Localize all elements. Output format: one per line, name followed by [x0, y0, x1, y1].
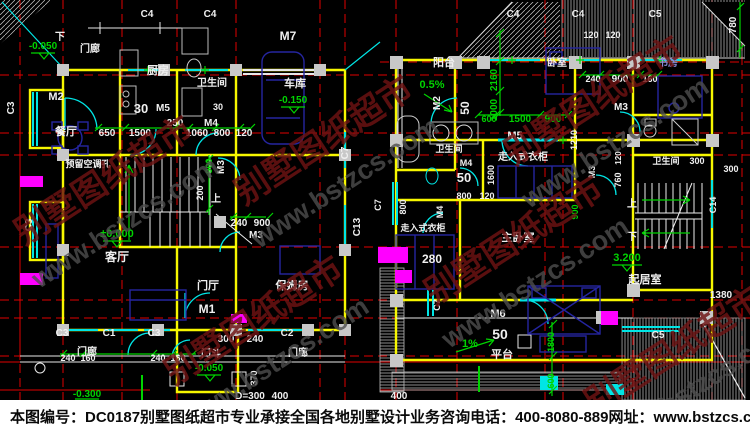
dim-120b: 120	[605, 30, 620, 40]
door-label-m4-bath: M4	[460, 158, 473, 168]
stair-up-label-r: 上	[627, 197, 637, 210]
dim-1600-v: 1600	[486, 165, 496, 185]
note-slope-balcony: 0.5%	[419, 79, 444, 91]
note-50-balcony: 50	[458, 101, 472, 115]
dim-300b: 300	[723, 164, 738, 174]
dim-1800-v: 1800	[546, 332, 556, 352]
footer-bar: 本图编号：DC0187 别墅图纸超市专业承接全国各地别墅设计业务 咨询电话：40…	[0, 400, 750, 432]
dim-2160: 2160	[489, 68, 500, 91]
stair-up-label: 上	[211, 192, 221, 205]
room-label-garage: 车库	[284, 76, 306, 90]
room-label-terrace: 平台	[491, 347, 513, 361]
window-label-c5-top: C5	[649, 9, 662, 20]
dim-800-v: 800	[398, 199, 408, 214]
window-label-c4-right: C4	[204, 9, 217, 20]
service-text: 别墅图纸超市专业承接全国各地别墅设计业务	[140, 406, 440, 427]
window-label-c4-mid-r: C4	[572, 9, 585, 20]
dim-400: 400	[391, 391, 408, 400]
window-label-c4-left-r: C4	[507, 9, 520, 20]
room-label-bathroom: 卫生间	[197, 76, 227, 89]
room-label-foyer: 门厅	[197, 278, 219, 292]
dim-800-r: 800	[456, 191, 471, 201]
dim-650: 650	[99, 128, 116, 139]
room-label-porch-top: 门廊	[80, 42, 100, 55]
website-label: 网址：www.bstzcs.com	[608, 406, 750, 427]
dim-300a: 300	[689, 156, 704, 166]
window-label-c3-left-top: C3	[6, 101, 17, 114]
dim-800: 800	[214, 128, 231, 139]
room-label-sitting: 起居室	[628, 272, 662, 286]
room-label-bathroom-left: 卫生间	[435, 143, 462, 154]
dim-240-stair: 240	[231, 218, 248, 229]
dim-600-v: 600	[546, 373, 556, 388]
note-50-m6: 50	[492, 326, 508, 342]
window-label-c14: C14	[708, 197, 718, 214]
window-label-c4-left: C4	[141, 9, 154, 20]
door-label-m4-closet: M4	[435, 206, 445, 219]
door-label-m2: M2	[48, 91, 63, 103]
room-label-kitchen: 厨房	[147, 63, 169, 77]
dim-280: 280	[422, 252, 442, 266]
room-label-bedroom: 卧室	[547, 56, 567, 69]
door-label-m2-r: M2	[432, 96, 443, 110]
level-floor: 3.200	[613, 252, 641, 264]
room-label-balcony: 阳台	[433, 55, 455, 69]
sheet-number-label: 本图编号：DC0187	[10, 406, 140, 427]
floor-plan-canvas: C4 C4 M7 下 -0.050 门廊 M2 厨房 30 M5 餐厅 C3 C…	[0, 0, 750, 400]
room-label-dining: 餐厅	[54, 124, 77, 138]
room-label-closet-left: 走入式衣柜	[399, 222, 445, 233]
dim-160-porch: 160	[80, 353, 95, 363]
door-width-30b: 30	[213, 102, 223, 112]
dim-780-v: 780	[728, 16, 739, 33]
note-50-bath: 50	[457, 170, 471, 185]
dim-120: 120	[236, 128, 253, 139]
dim-240-porch: 240	[60, 353, 75, 363]
level-porch-top: -0.050	[29, 41, 58, 52]
dim-120a: 120	[583, 30, 598, 40]
door-label-m7: M7	[280, 29, 297, 43]
dim-120c: 120	[479, 191, 494, 201]
window-label-c13: C13	[352, 217, 363, 236]
level-ground: -0.300	[73, 389, 102, 400]
door-label-m1: M1	[199, 302, 216, 316]
window-label-c1: C1	[103, 328, 116, 339]
room-label-bathroom-right: 卫生间	[652, 155, 679, 166]
door-label-m5: M5	[156, 103, 170, 114]
note-drain-size: 400	[272, 391, 289, 400]
level-garage: -0.150	[279, 95, 308, 106]
cad-sheet: C4 C4 M7 下 -0.050 门廊 M2 厨房 30 M5 餐厅 C3 C…	[0, 0, 750, 432]
dim-760-v: 760	[613, 172, 623, 187]
side-steps-hatch	[380, 268, 404, 392]
door-width-30: 30	[134, 101, 148, 116]
window-label-c7-left-r: C7	[373, 199, 383, 211]
window-label-c3-bottom-left: C3	[56, 328, 69, 339]
phone-label: 咨询电话：400-8080-889	[440, 406, 608, 427]
dim-600: 600	[481, 114, 496, 124]
window-label-c3-bottom-right: C3	[148, 328, 161, 339]
